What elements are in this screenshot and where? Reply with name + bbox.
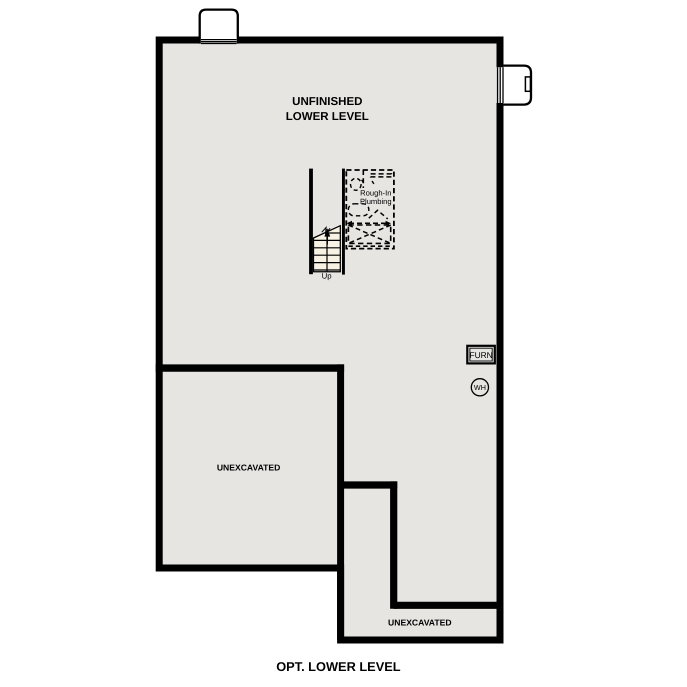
svg-text:LOWER LEVEL: LOWER LEVEL (286, 111, 369, 123)
svg-text:WH: WH (474, 383, 486, 392)
svg-text:UNEXCAVATED: UNEXCAVATED (388, 618, 452, 628)
svg-text:UNFINISHED: UNFINISHED (292, 96, 362, 108)
svg-text:UNEXCAVATED: UNEXCAVATED (217, 463, 281, 473)
svg-text:FURN: FURN (469, 350, 492, 360)
svg-text:Up: Up (322, 272, 333, 281)
svg-text:Plumbing: Plumbing (360, 197, 392, 206)
svg-text:OPT. LOWER LEVEL: OPT. LOWER LEVEL (276, 659, 401, 674)
